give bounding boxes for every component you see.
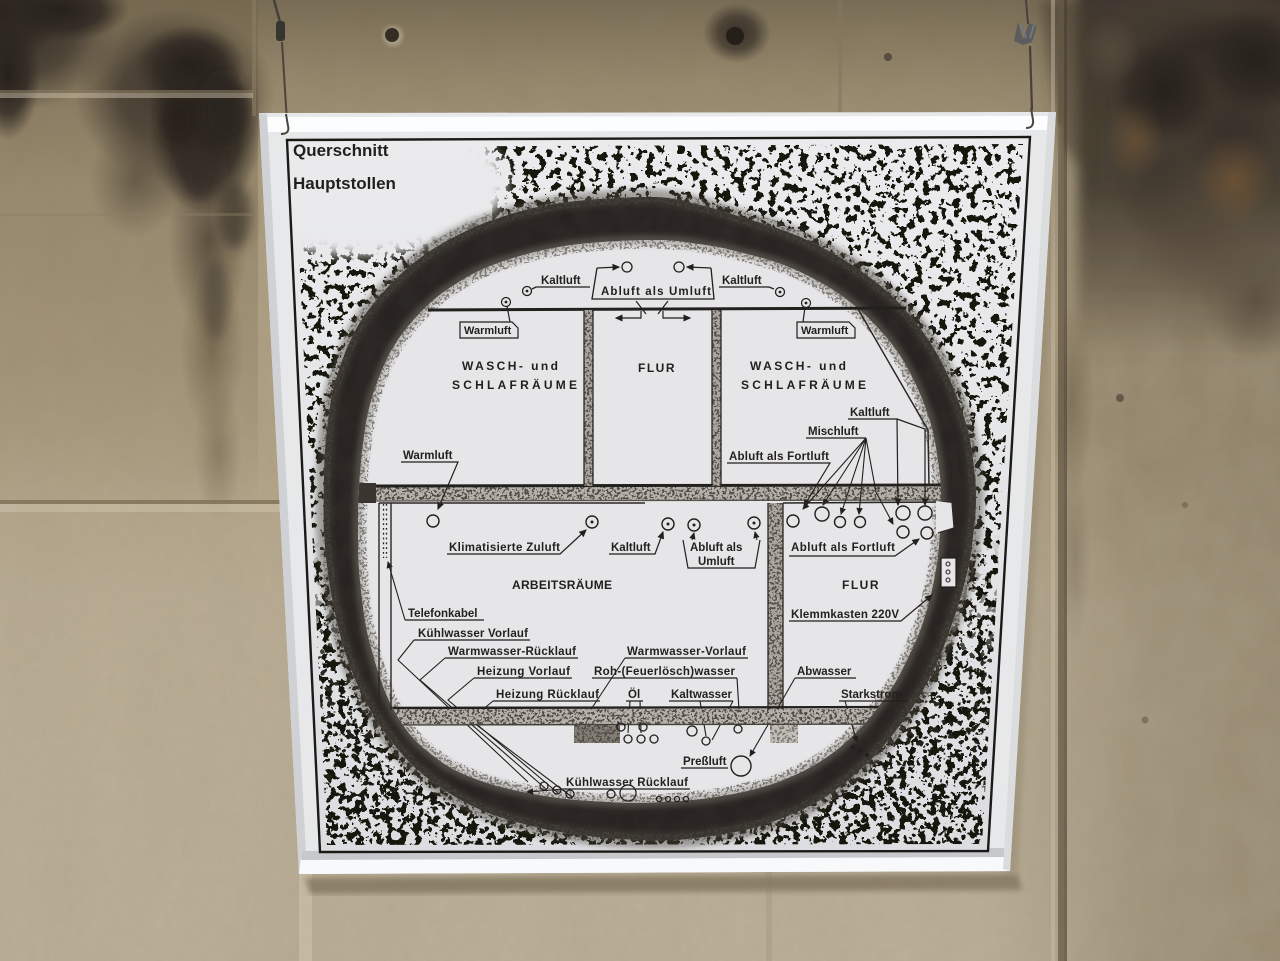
svg-text:Öl: Öl xyxy=(628,688,640,701)
svg-text:Heizung Vorlauf: Heizung Vorlauf xyxy=(477,666,570,678)
svg-text:Abluft als Fortluft: Abluft als Fortluft xyxy=(791,542,895,554)
svg-text:Warmluft: Warmluft xyxy=(801,325,849,337)
svg-text:FLUR: FLUR xyxy=(638,361,676,375)
svg-text:Kühlwasser Vorlauf: Kühlwasser Vorlauf xyxy=(418,628,528,640)
svg-text:Mischluft: Mischluft xyxy=(808,426,859,438)
svg-text:Klemmkasten 220V: Klemmkasten 220V xyxy=(791,609,899,621)
svg-text:WASCH- und: WASCH- und xyxy=(462,359,558,373)
svg-text:Querschnitt: Querschnitt xyxy=(293,141,389,160)
svg-text:WASCH- und: WASCH- und xyxy=(750,359,846,373)
svg-text:Abwasser: Abwasser xyxy=(797,666,852,678)
svg-text:Telefonkabel: Telefonkabel xyxy=(408,608,477,620)
svg-text:Abluft als: Abluft als xyxy=(690,542,742,554)
svg-text:Starkstrom: Starkstrom xyxy=(841,689,902,701)
svg-text:Kühlwasser Rücklauf: Kühlwasser Rücklauf xyxy=(566,777,688,789)
svg-text:Klimatisierte Zuluft: Klimatisierte Zuluft xyxy=(449,542,560,554)
svg-text:FLUR: FLUR xyxy=(842,578,880,592)
svg-text:Warmwasser-Rücklauf: Warmwasser-Rücklauf xyxy=(448,646,576,658)
svg-text:Abluft als Fortluft: Abluft als Fortluft xyxy=(729,451,829,463)
svg-text:Kaltluft: Kaltluft xyxy=(541,275,581,287)
svg-text:SCHLAFRÄUME: SCHLAFRÄUME xyxy=(452,377,577,392)
svg-text:ARBEITSRÄUME: ARBEITSRÄUME xyxy=(512,577,612,592)
svg-text:Warmwasser-Vorlauf: Warmwasser-Vorlauf xyxy=(627,646,746,658)
svg-text:Preßluft: Preßluft xyxy=(683,756,727,768)
svg-text:Kaltluft: Kaltluft xyxy=(611,542,651,554)
svg-text:Kaltwasser: Kaltwasser xyxy=(671,689,733,701)
svg-text:Kaltluft: Kaltluft xyxy=(722,275,762,287)
svg-text:Heizung Rücklauf: Heizung Rücklauf xyxy=(496,689,599,701)
svg-text:Warmluft: Warmluft xyxy=(403,450,453,462)
svg-text:Kaltluft: Kaltluft xyxy=(850,407,890,419)
svg-text:SCHLAFRÄUME: SCHLAFRÄUME xyxy=(741,377,866,392)
svg-text:Umluft: Umluft xyxy=(698,556,735,568)
svg-text:Hauptstollen: Hauptstollen xyxy=(293,174,396,193)
svg-text:Warmluft: Warmluft xyxy=(464,325,512,337)
